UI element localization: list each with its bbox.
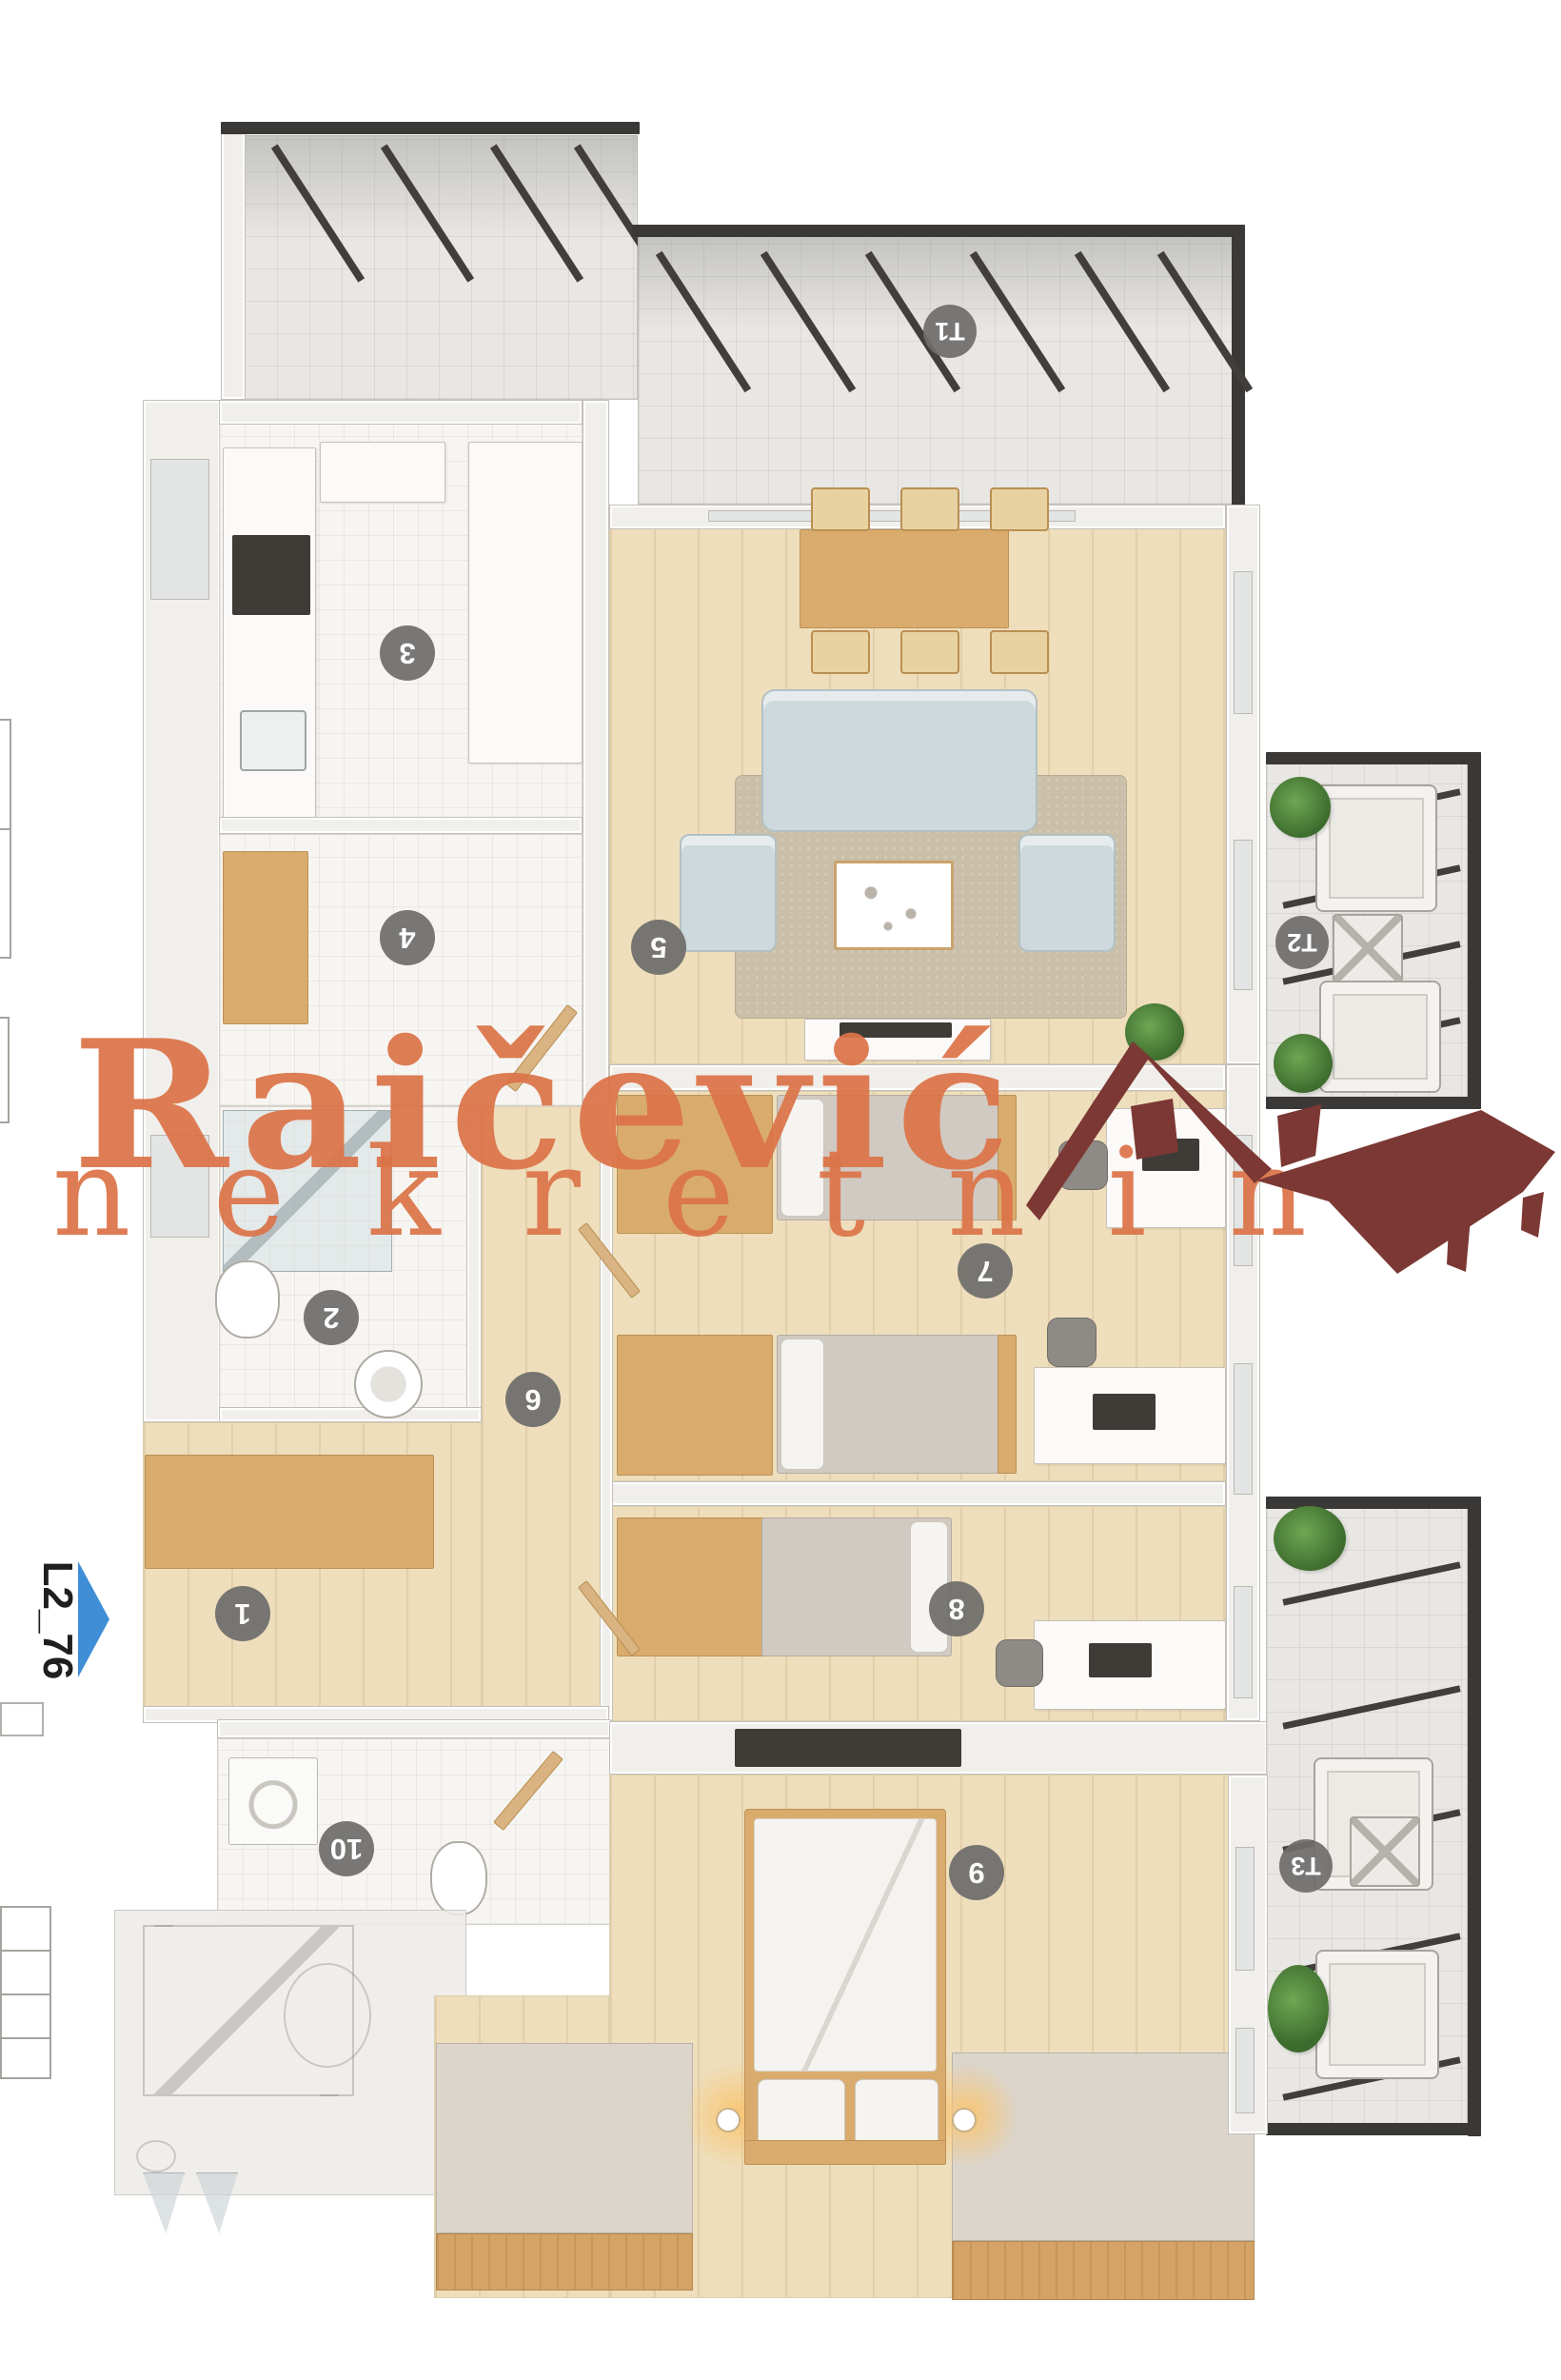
label-10: 10 xyxy=(319,1821,374,1876)
plan-direction-arrow-icon xyxy=(78,1561,109,1677)
label-T3: T3 xyxy=(1279,1839,1333,1893)
label-9: 9 xyxy=(949,1845,1004,1900)
label-3: 3 xyxy=(380,625,435,681)
label-2: 2 xyxy=(304,1290,359,1345)
label-4: 4 xyxy=(380,910,435,965)
label-T2: T2 xyxy=(1275,916,1329,969)
label-1: 1 xyxy=(215,1586,270,1641)
floor-plan-image: T1345T272618109T3 Raičević nekretnine L2… xyxy=(0,0,1561,2380)
label-8: 8 xyxy=(929,1581,984,1636)
label-6: 6 xyxy=(505,1372,561,1427)
watermark-roof-logo xyxy=(1009,1028,1561,1342)
label-T1: T1 xyxy=(923,305,977,358)
plan-id-label: L2_76 xyxy=(33,1561,81,1680)
label-5: 5 xyxy=(631,920,686,975)
